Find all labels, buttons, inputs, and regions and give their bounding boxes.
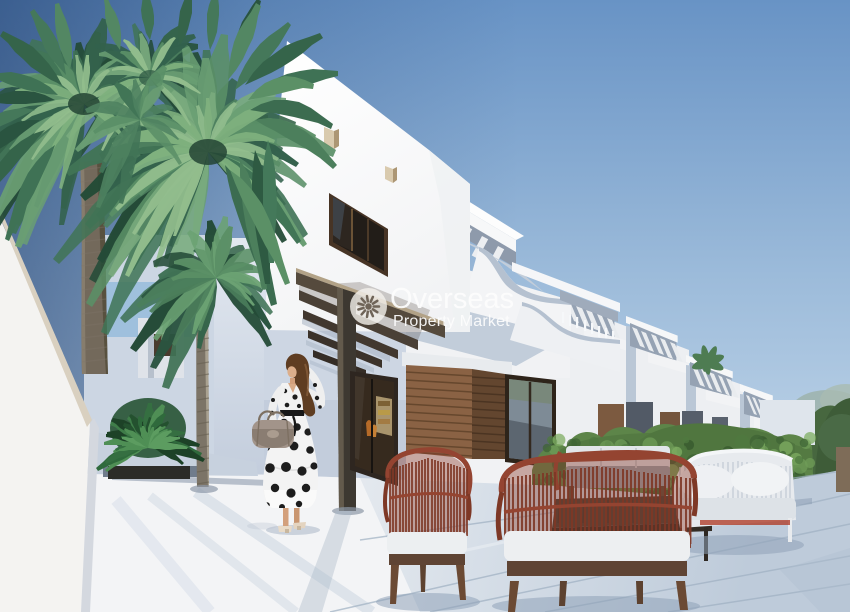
svg-text:Overseas: Overseas — [390, 283, 514, 315]
svg-text:Property Market: Property Market — [393, 313, 510, 330]
